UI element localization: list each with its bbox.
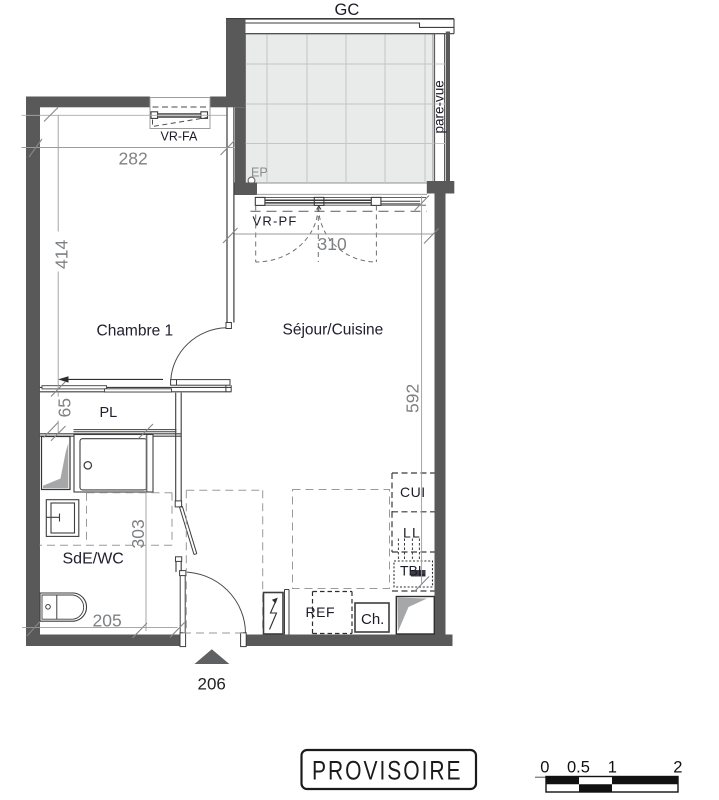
- svg-text:Séjour/Cuisine: Séjour/Cuisine: [283, 322, 384, 339]
- svg-text:303: 303: [128, 519, 148, 548]
- svg-text:592: 592: [403, 384, 423, 413]
- svg-text:LL: LL: [403, 525, 421, 541]
- svg-text:VR-FA: VR-FA: [161, 130, 198, 144]
- svg-text:pare-vue: pare-vue: [432, 80, 447, 133]
- svg-text:65: 65: [55, 398, 75, 417]
- svg-text:310: 310: [318, 234, 347, 254]
- svg-text:206: 206: [198, 675, 226, 694]
- svg-text:282: 282: [119, 149, 148, 169]
- svg-text:GC: GC: [335, 1, 360, 19]
- svg-text:205: 205: [93, 611, 122, 631]
- svg-text:Chambre 1: Chambre 1: [97, 323, 174, 340]
- svg-text:2: 2: [673, 759, 682, 777]
- svg-text:VR-PF: VR-PF: [253, 214, 298, 229]
- svg-text:0: 0: [540, 759, 549, 777]
- svg-text:1: 1: [608, 759, 617, 777]
- svg-text:REF: REF: [306, 604, 336, 620]
- svg-text:SdE/WC: SdE/WC: [63, 551, 124, 568]
- svg-text:PROVISOIRE: PROVISOIRE: [312, 756, 463, 786]
- svg-text:Ch.: Ch.: [361, 611, 384, 628]
- svg-text:414: 414: [52, 240, 72, 269]
- svg-text:PL: PL: [100, 405, 118, 421]
- svg-text:0.5: 0.5: [567, 759, 590, 777]
